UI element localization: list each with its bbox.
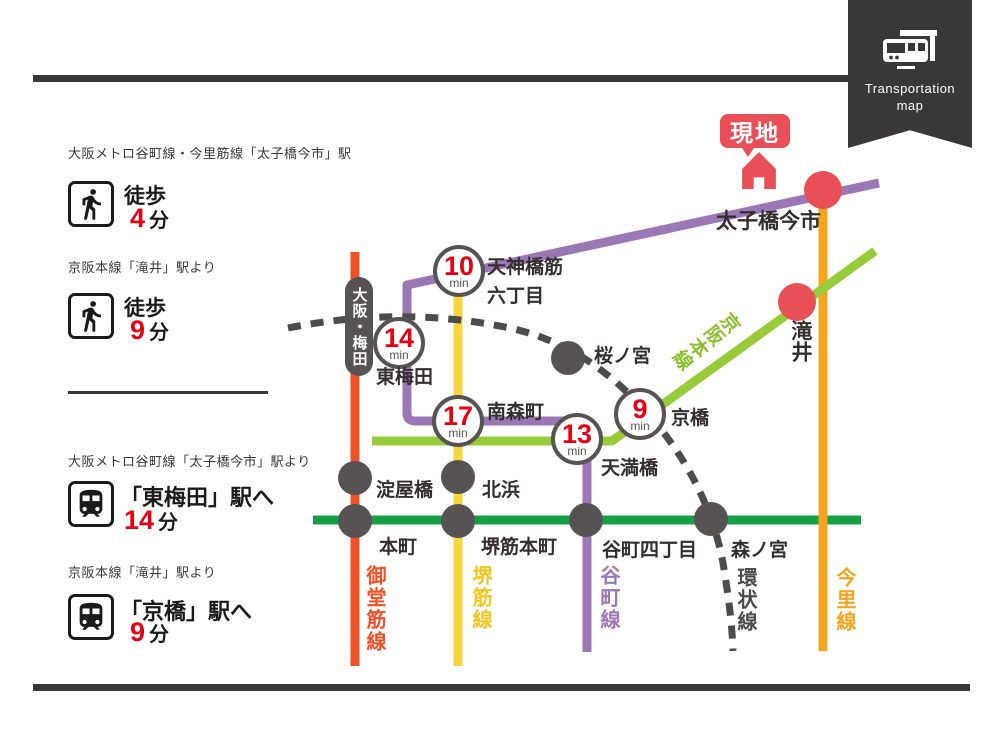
time-badge-kyobashi: 9 min [614, 388, 666, 440]
line-label-midosuji: 御堂筋線 [360, 565, 389, 653]
station-label-line2: 六丁目 [487, 282, 563, 311]
badge-unit: min [630, 421, 649, 431]
line-label-kanjo: 環状線 [731, 567, 760, 633]
station-dot-sakuranomiya [551, 341, 585, 375]
station-dot-yodoyabashi [338, 461, 372, 495]
station-label-sakaisuji-hommachi: 堺筋本町 [481, 532, 557, 559]
station-label-kitahama: 北浜 [482, 475, 520, 502]
time-badge-minamimorimachi: 17 min [432, 395, 484, 447]
site-label: 現地 [730, 114, 780, 148]
station-dot-sakaisuji-hommachi [441, 504, 475, 538]
badge-unit: min [389, 350, 408, 360]
transportation-map-page: Transportation map 大阪メトロ谷町線・今里筋線「太子橋今市」駅… [0, 0, 1000, 750]
time-badge-temmabashi: 13 min [551, 413, 603, 465]
station-label-takii: 滝井 [785, 320, 815, 362]
station-dot-takii [778, 283, 816, 321]
badge-unit: min [449, 278, 468, 288]
station-label-kyobashi: 京橋 [671, 403, 709, 430]
line-label-imazato: 今里線 [830, 567, 859, 633]
line-label-sakaisuji: 堺筋線 [466, 565, 495, 631]
station-label-tanimachi-4chome: 谷町四丁目 [602, 535, 697, 562]
station-dot-morinomiya [694, 502, 728, 536]
station-label-yodoyabashi: 淀屋橋 [376, 475, 433, 502]
station-dot-kitahama [441, 460, 475, 494]
station-label-minamimorimachi: 南森町 [487, 397, 544, 424]
station-label-morinomiya: 森ノ宮 [731, 535, 788, 562]
station-label-hommachi: 本町 [379, 532, 417, 559]
station-dot-hommachi [338, 504, 372, 538]
station-dot-tanimachi-4chome [569, 503, 603, 537]
rail-lines-canvas [0, 0, 1000, 750]
badge-minutes: 17 [443, 404, 473, 428]
station-label-sakuranomiya: 桜ノ宮 [594, 341, 651, 368]
badge-unit: min [448, 428, 467, 438]
site-bubble: 現地 [720, 114, 790, 148]
station-label-taishibashi-imaichi: 太子橋今市 [716, 205, 821, 235]
station-label-higashi-umeda: 東梅田 [376, 362, 433, 389]
station-label-line1: 天神橋筋 [487, 253, 563, 282]
station-label-temmabashi: 天満橋 [601, 453, 658, 480]
station-dot-taishibashi-imaichi [804, 171, 842, 209]
badge-minutes: 14 [384, 326, 414, 350]
badge-minutes: 13 [562, 422, 592, 446]
house-icon [741, 151, 777, 189]
badge-unit: min [567, 446, 586, 456]
osaka-umeda-label: 大阪・梅田 [349, 287, 370, 367]
badge-minutes: 10 [444, 254, 474, 278]
station-label-tenjimbashisuji: 天神橋筋 六丁目 [487, 253, 563, 311]
badge-minutes: 9 [632, 397, 647, 421]
line-label-tanimachi: 谷町線 [594, 565, 623, 631]
time-badge-tenjimbashisuji: 10 min [433, 245, 485, 297]
osaka-umeda-pill: 大阪・梅田 [345, 277, 373, 376]
